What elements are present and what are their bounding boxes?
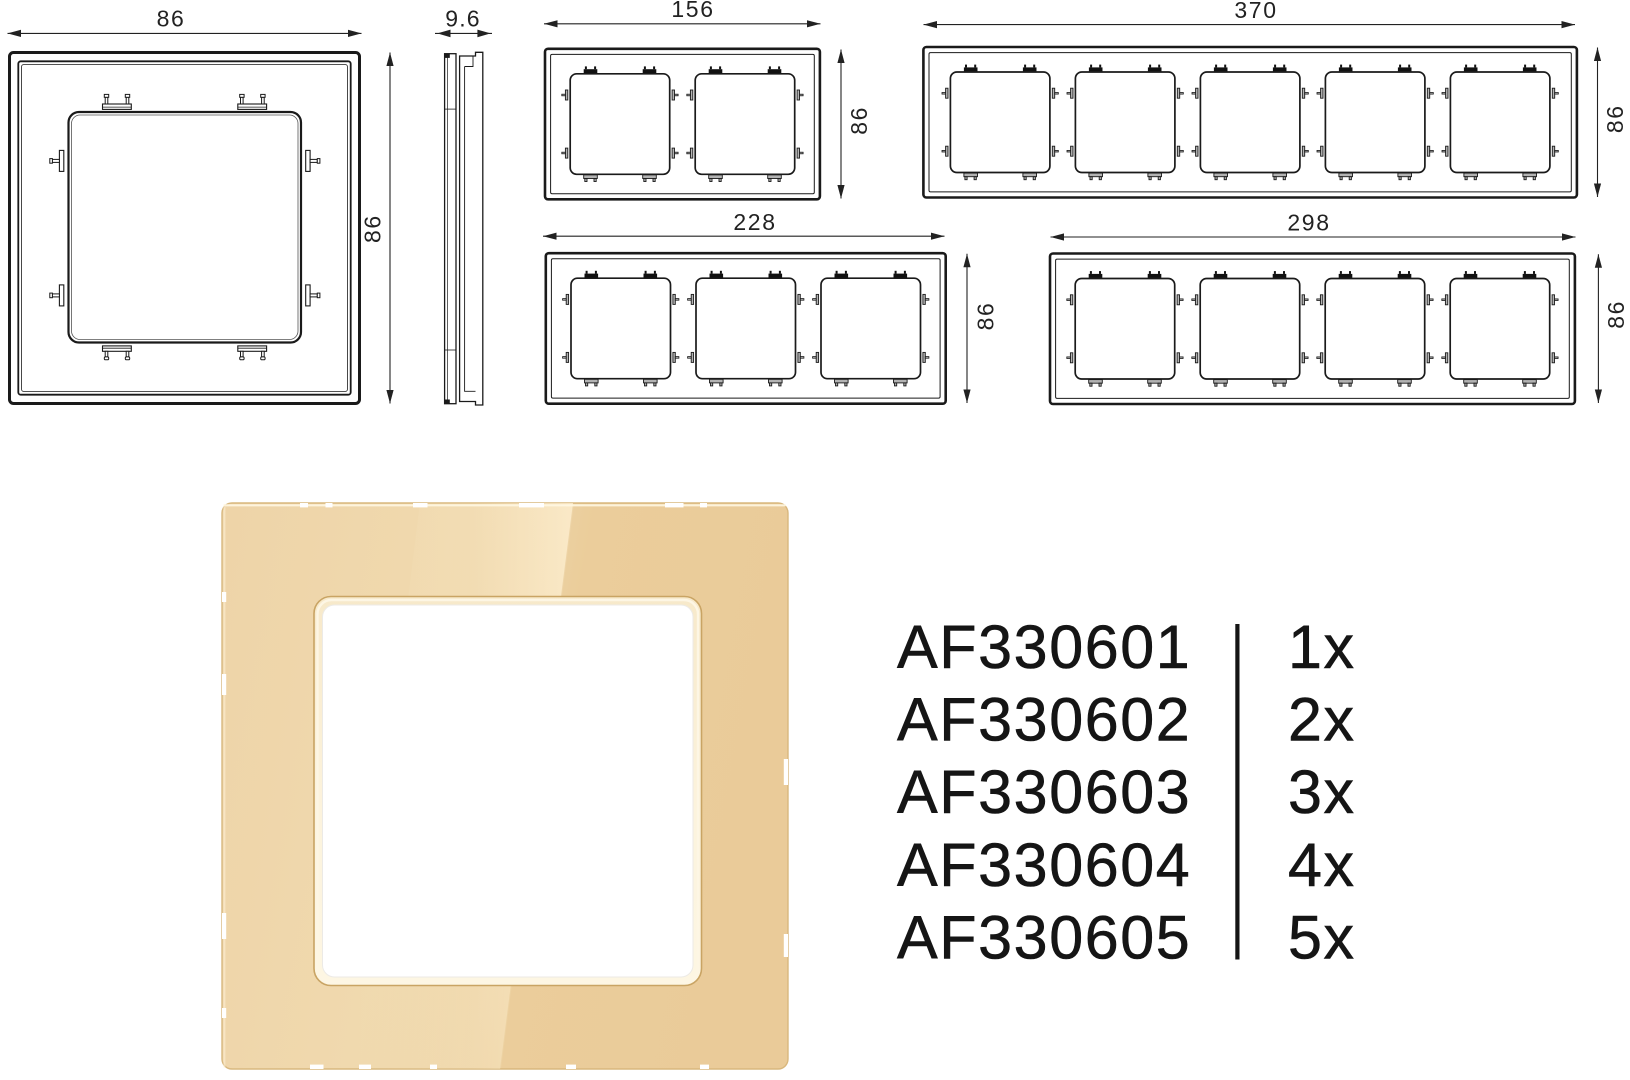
svg-text:AF330604: AF330604 — [897, 831, 1191, 899]
svg-text:370: 370 — [1234, 0, 1277, 23]
svg-text:AF330603: AF330603 — [897, 758, 1191, 826]
svg-text:86: 86 — [360, 214, 386, 243]
svg-text:86: 86 — [1603, 300, 1629, 329]
svg-text:86: 86 — [1602, 104, 1628, 133]
svg-text:228: 228 — [733, 209, 776, 235]
svg-text:AF330605: AF330605 — [897, 903, 1191, 971]
svg-text:86: 86 — [846, 106, 872, 135]
svg-text:4x: 4x — [1288, 831, 1356, 899]
svg-text:9.6: 9.6 — [445, 6, 481, 32]
svg-text:AF330602: AF330602 — [897, 686, 1191, 754]
svg-text:AF330601: AF330601 — [897, 613, 1191, 681]
svg-text:1x: 1x — [1288, 613, 1356, 681]
svg-text:2x: 2x — [1288, 686, 1356, 754]
svg-text:3x: 3x — [1288, 758, 1356, 826]
svg-text:156: 156 — [671, 0, 714, 22]
svg-text:86: 86 — [157, 6, 186, 32]
svg-text:298: 298 — [1287, 210, 1330, 236]
svg-text:5x: 5x — [1288, 903, 1356, 971]
svg-text:86: 86 — [973, 302, 999, 331]
